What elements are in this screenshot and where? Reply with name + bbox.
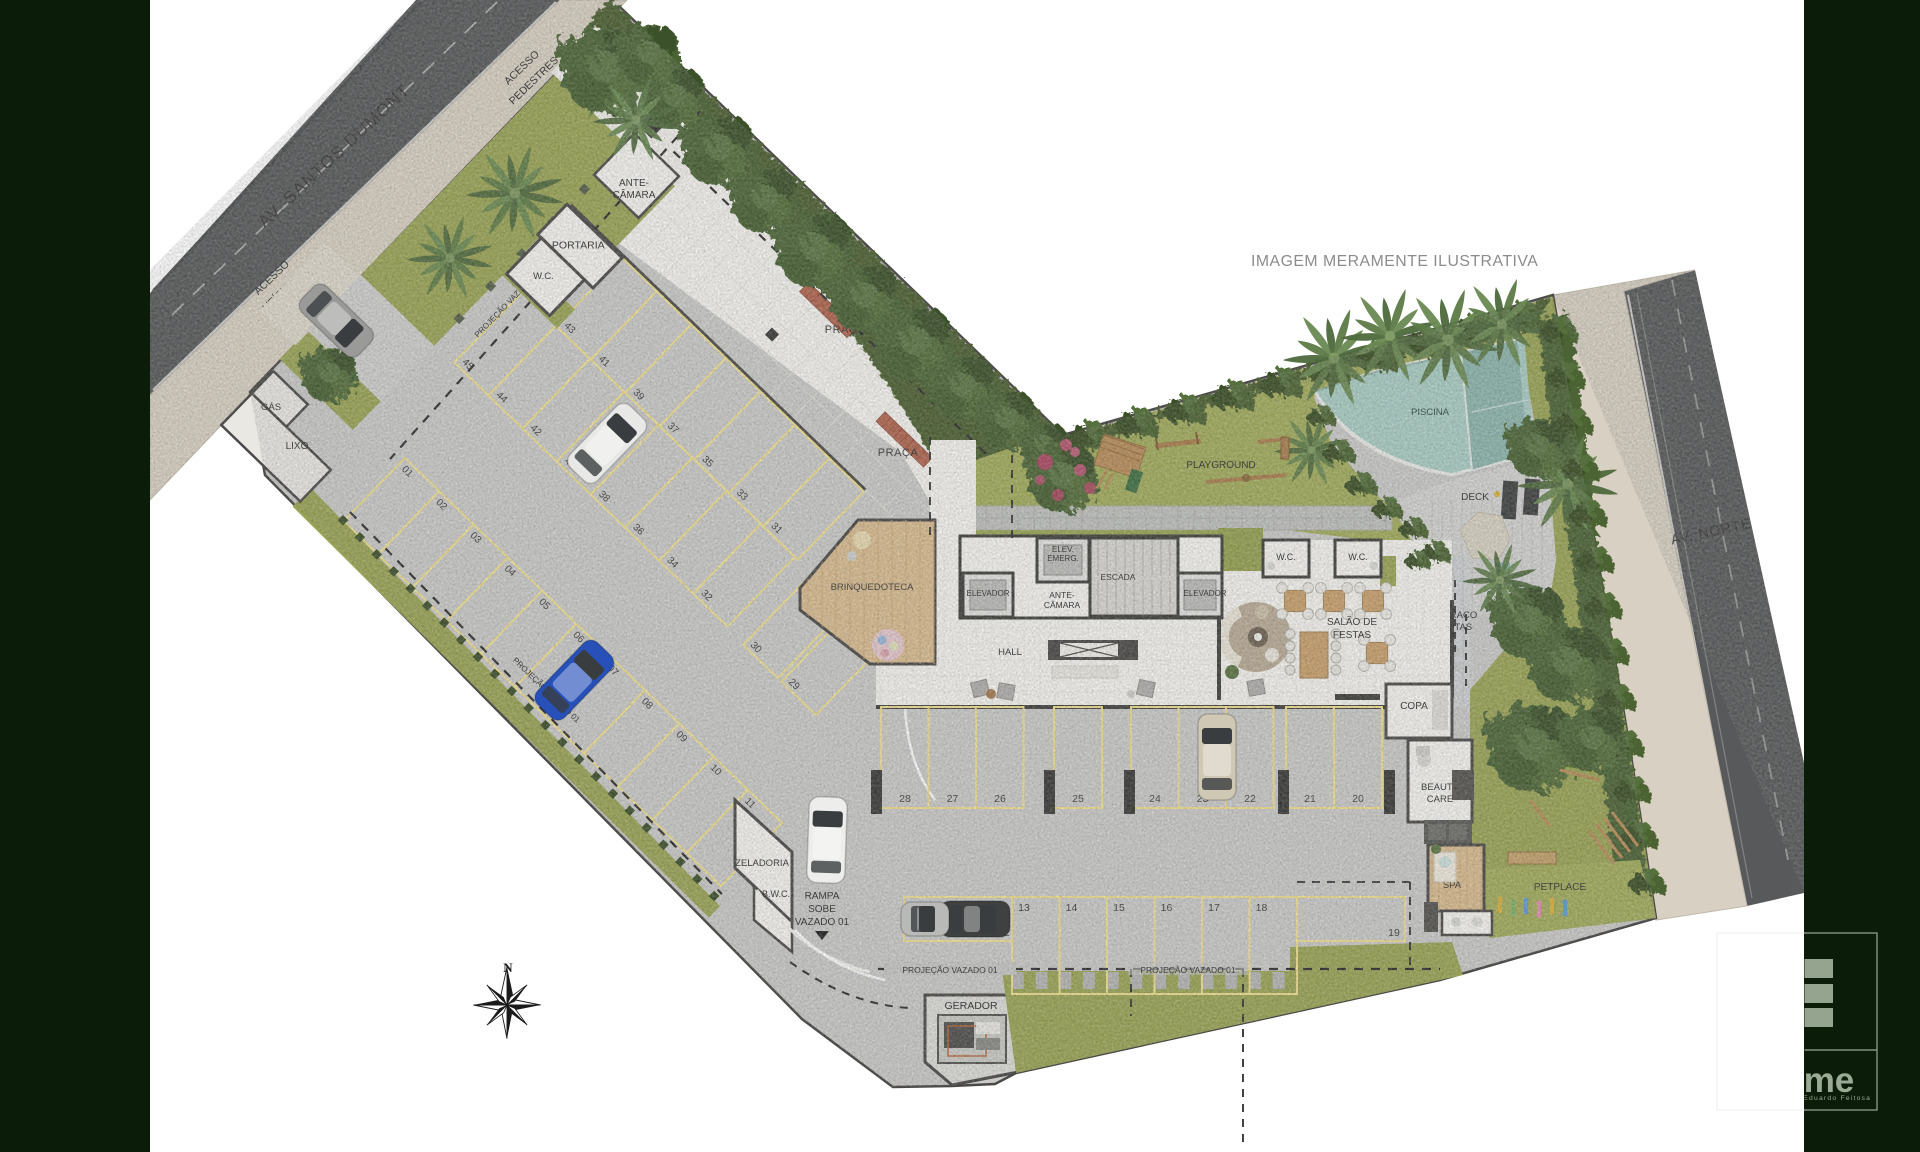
svg-text:N: N bbox=[503, 960, 513, 975]
svg-text:IMAGEM MERAMENTE ILUSTRATIVA: IMAGEM MERAMENTE ILUSTRATIVA bbox=[1251, 253, 1538, 270]
